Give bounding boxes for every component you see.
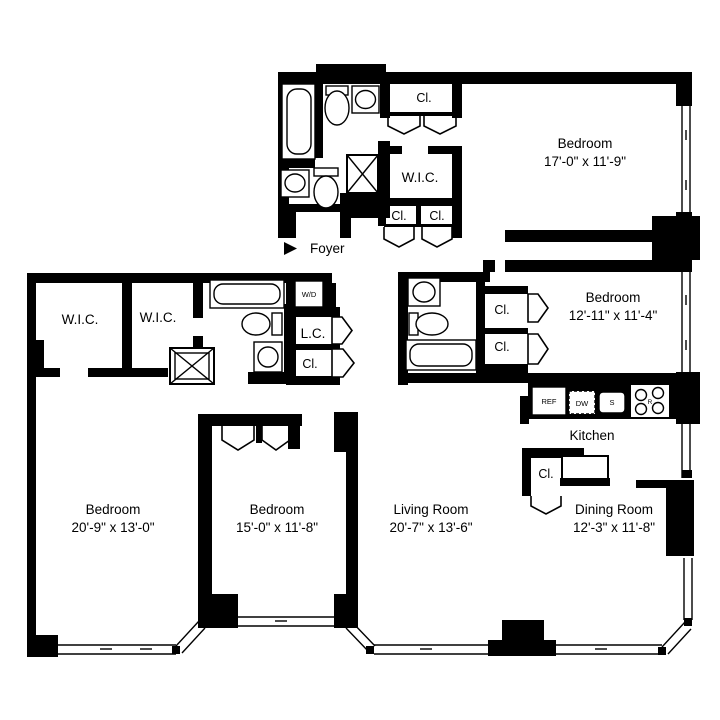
room-label-living: Living Room [393, 502, 468, 517]
toilet-middle [242, 313, 282, 335]
sink-upper-2 [281, 170, 309, 197]
sink-upper-1 [352, 86, 379, 113]
floor-plan: Bedroom 17'-0" x 11'-9" Bedroom 12'-11" … [0, 0, 720, 720]
door-arrow [332, 317, 352, 344]
closet-door [384, 227, 414, 247]
closet-label-bedroom2-2: Cl. [494, 340, 509, 354]
entry-arrow-icon [284, 242, 297, 255]
toilet-upper-2 [314, 168, 338, 208]
toilet-bedroom2-bath [409, 313, 448, 335]
closet-label-kitchen: Cl. [538, 467, 553, 481]
room-dims-bedroom-2: 12'-11" x 11'-4" [569, 308, 658, 323]
door-arrow [528, 334, 548, 364]
bathtub-bedroom2-bath [406, 340, 476, 370]
room-dims-bedroom-3: 20'-9" x 13'-0" [71, 520, 154, 535]
door-arrow [528, 294, 548, 322]
shower-middle [170, 348, 214, 384]
closet-label-mid: Cl. [302, 357, 317, 371]
dishwasher-label: DW [576, 399, 589, 408]
closet-door [262, 426, 290, 450]
door-arrow [332, 349, 354, 377]
closet-door [222, 426, 254, 450]
wic-label-left-2: W.I.C. [140, 310, 177, 325]
range-label: R [648, 399, 653, 406]
linen-closet-label: L.C. [301, 326, 326, 341]
washer-dryer-label: W/D [302, 290, 317, 299]
room-dims-dining: 12'-3" x 11'-8" [573, 520, 655, 535]
refrigerator-label: REF [542, 397, 557, 406]
room-label-bedroom-1: Bedroom [558, 136, 613, 151]
floor-plan-drawing: Bedroom 17'-0" x 11'-9" Bedroom 12'-11" … [0, 0, 720, 720]
room-label-bedroom-2: Bedroom [586, 290, 641, 305]
room-label-foyer: Foyer [310, 241, 345, 256]
kitchen-sink-label: S [609, 398, 614, 407]
closet-label-top: Cl. [416, 91, 431, 105]
room-label-dining: Dining Room [575, 502, 653, 517]
closet-door [424, 116, 456, 134]
sink-bedroom2-bath [408, 278, 440, 306]
bathtub-middle [210, 280, 284, 308]
wic-label-top: W.I.C. [402, 170, 439, 185]
room-dims-bedroom-1: 17'-0" x 11'-9" [544, 154, 626, 169]
kitchen-counter [560, 456, 610, 486]
room-label-bedroom-3: Bedroom [86, 502, 141, 517]
walls [27, 64, 700, 657]
toilet-upper-1 [325, 86, 349, 125]
room-dims-bedroom-4: 15'-0" x 11'-8" [236, 520, 318, 535]
room-dims-living: 20'-7" x 13'-6" [389, 520, 472, 535]
bathtub-upper [282, 84, 315, 159]
wic-label-left-1: W.I.C. [62, 312, 99, 327]
closet-door [388, 116, 420, 134]
sink-middle [254, 342, 282, 372]
shower-upper [347, 155, 378, 193]
room-label-bedroom-4: Bedroom [250, 502, 305, 517]
closet-door [531, 496, 561, 514]
room-label-kitchen: Kitchen [569, 428, 614, 443]
closet-label-small-2: Cl. [429, 209, 444, 223]
closet-door [422, 227, 452, 247]
closet-label-bedroom2-1: Cl. [494, 303, 509, 317]
closet-label-small-1: Cl. [391, 209, 406, 223]
